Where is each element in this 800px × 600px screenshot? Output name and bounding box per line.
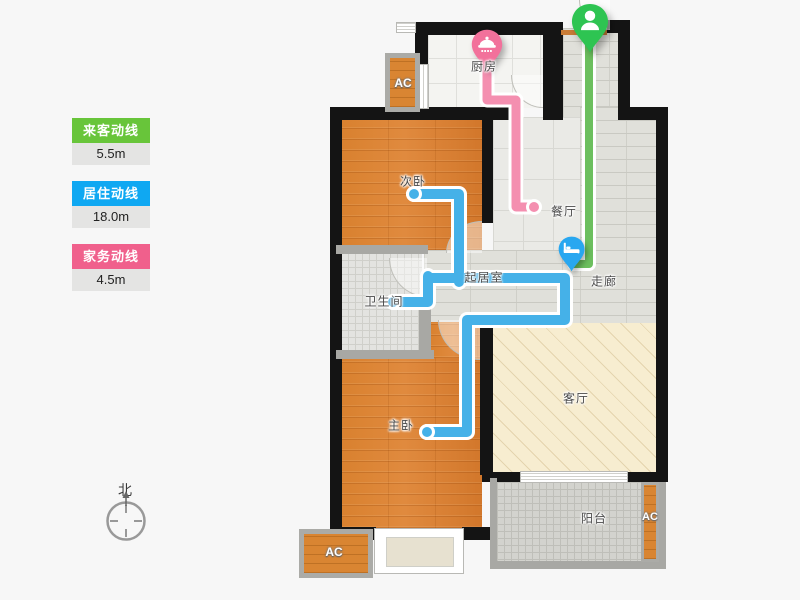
legend-guest-value: 5.5m <box>72 143 150 165</box>
wall-bathroom-bottom <box>336 350 434 359</box>
wall-balcony-right <box>658 482 666 569</box>
wall-balcony-bottom <box>490 561 666 569</box>
route-legend: 来客动线 5.5m 居住动线 18.0m 家务动线 4.5m <box>72 118 150 307</box>
wall-balcony-left <box>490 478 497 569</box>
master-label: 主卧 <box>388 417 414 434</box>
master-floor <box>341 356 482 528</box>
bedroom2-label: 次卧 <box>400 173 426 190</box>
ac-balcony-label: AC <box>642 511 658 523</box>
core-floor <box>424 250 580 323</box>
legend-item-resident: 居住动线 18.0m <box>72 181 150 228</box>
floor-plan-stage: AC AC AC <box>0 0 800 600</box>
balcony-floor <box>497 482 642 563</box>
ac-top-label: AC <box>394 76 411 90</box>
wall-living-bottom-left <box>482 472 520 482</box>
legend-item-guest: 来客动线 5.5m <box>72 118 150 165</box>
wall-left <box>330 107 342 540</box>
wall-bathroom-right <box>419 294 431 356</box>
legend-guest-label: 来客动线 <box>72 118 150 143</box>
core-label: 起居室 <box>464 269 503 286</box>
hallway-floor <box>580 107 656 323</box>
legend-item-chores: 家务动线 4.5m <box>72 244 150 291</box>
balcony-label: 阳台 <box>581 510 607 527</box>
wall-bedroom2-right <box>482 115 493 223</box>
wall-master-right <box>480 318 493 475</box>
bathroom-label: 卫生间 <box>364 293 403 310</box>
ac-bottom-label: AC <box>325 545 342 559</box>
dining-label: 餐厅 <box>551 203 577 220</box>
wall-bathroom-top <box>336 245 428 254</box>
legend-resident-label: 居住动线 <box>72 181 150 206</box>
wall-entry-right <box>618 20 630 120</box>
master-bay-window-inner <box>386 537 454 567</box>
legend-chores-label: 家务动线 <box>72 244 150 269</box>
balcony-sliding-door <box>520 471 628 483</box>
legend-resident-value: 18.0m <box>72 206 150 228</box>
compass-dial <box>108 496 145 540</box>
living-label: 客厅 <box>563 390 589 407</box>
wall-right <box>656 107 668 482</box>
kitchen-label: 厨房 <box>471 58 497 75</box>
wall-living-bottom-right <box>628 472 656 482</box>
kitchen-top-window <box>396 22 416 33</box>
hallway-label: 走廊 <box>591 273 617 290</box>
wall-kitchen-right <box>543 33 563 120</box>
north-compass: 北 <box>100 480 156 550</box>
legend-chores-value: 4.5m <box>72 269 150 291</box>
